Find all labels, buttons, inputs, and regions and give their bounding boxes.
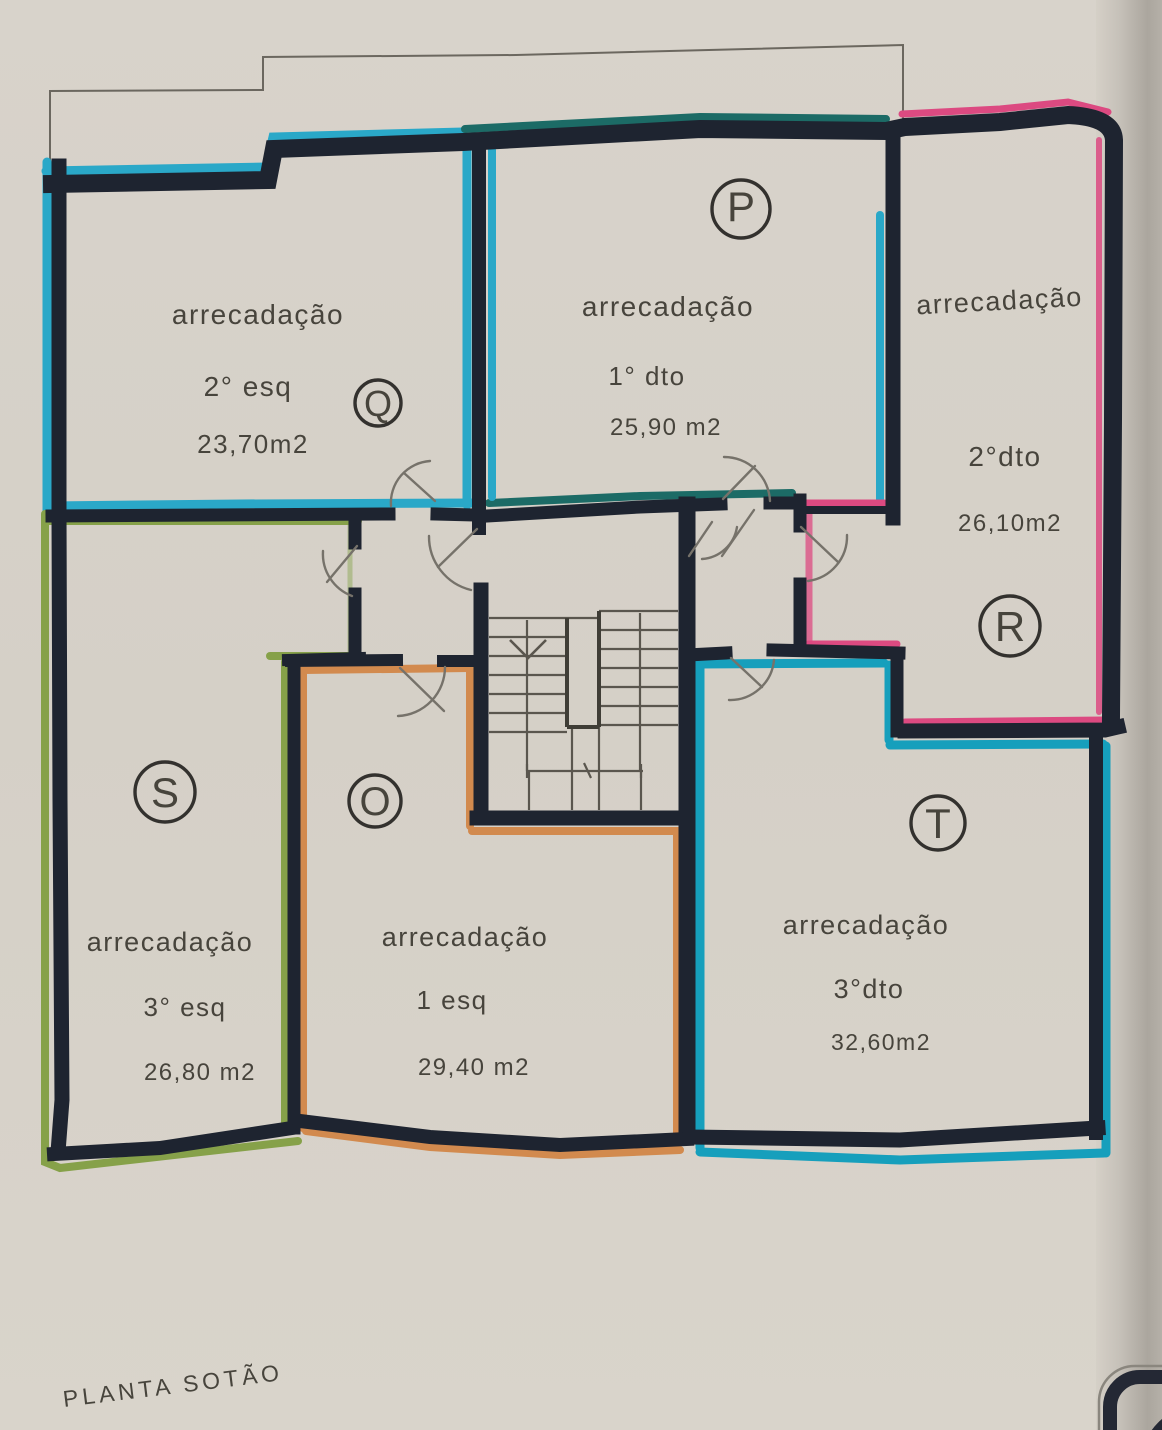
svg-text:29,40 m2: 29,40 m2 bbox=[418, 1054, 530, 1081]
svg-text:Q: Q bbox=[364, 383, 392, 424]
svg-text:arrecadação: arrecadação bbox=[87, 927, 254, 957]
svg-text:arrecadação: arrecadação bbox=[172, 299, 344, 330]
svg-text:1° dto: 1° dto bbox=[608, 361, 685, 391]
svg-text:2°dto: 2°dto bbox=[968, 441, 1041, 472]
svg-text:T: T bbox=[925, 800, 951, 847]
svg-text:3°dto: 3°dto bbox=[834, 974, 905, 1004]
svg-text:1 esq: 1 esq bbox=[416, 985, 487, 1015]
svg-text:3° esq: 3° esq bbox=[143, 992, 226, 1022]
svg-text:P: P bbox=[727, 183, 755, 230]
svg-text:O: O bbox=[359, 780, 390, 824]
svg-text:23,70m2: 23,70m2 bbox=[197, 429, 309, 459]
svg-text:S: S bbox=[151, 769, 179, 816]
svg-text:26,10m2: 26,10m2 bbox=[958, 510, 1062, 537]
svg-text:32,60m2: 32,60m2 bbox=[831, 1029, 931, 1055]
svg-text:arrecadação: arrecadação bbox=[382, 922, 549, 952]
svg-text:26,80 m2: 26,80 m2 bbox=[144, 1059, 256, 1086]
svg-text:arrecadação: arrecadação bbox=[582, 291, 754, 322]
svg-text:arrecadação: arrecadação bbox=[783, 910, 950, 940]
svg-text:25,90 m2: 25,90 m2 bbox=[610, 414, 722, 441]
svg-text:2° esq: 2° esq bbox=[204, 371, 293, 402]
svg-text:R: R bbox=[995, 603, 1025, 650]
